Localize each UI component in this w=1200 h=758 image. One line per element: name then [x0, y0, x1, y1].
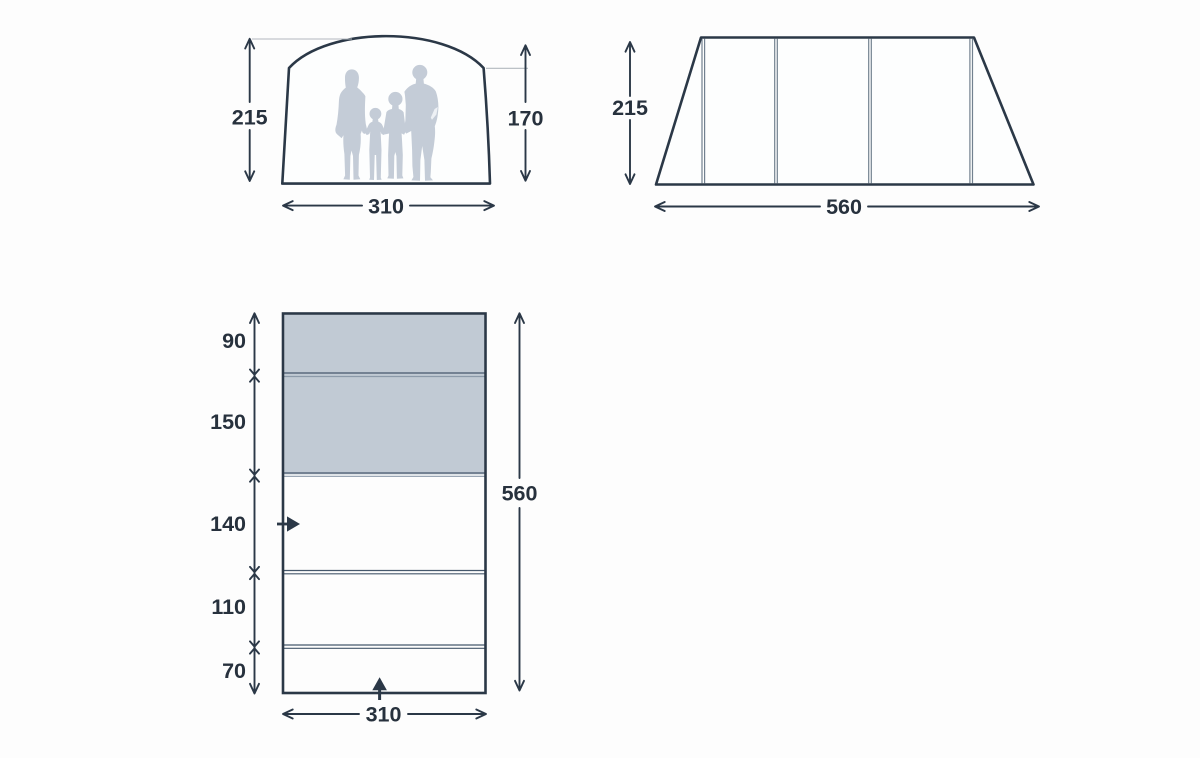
svg-text:150: 150 — [210, 410, 246, 434]
svg-text:560: 560 — [826, 195, 862, 219]
svg-text:215: 215 — [612, 96, 648, 120]
svg-text:110: 110 — [211, 595, 246, 619]
svg-text:170: 170 — [508, 107, 544, 131]
svg-text:560: 560 — [502, 482, 538, 506]
svg-text:310: 310 — [366, 703, 402, 727]
svg-text:90: 90 — [222, 329, 246, 353]
svg-text:140: 140 — [210, 512, 246, 536]
svg-text:70: 70 — [222, 659, 246, 683]
svg-text:310: 310 — [368, 194, 404, 218]
svg-text:215: 215 — [232, 106, 268, 130]
